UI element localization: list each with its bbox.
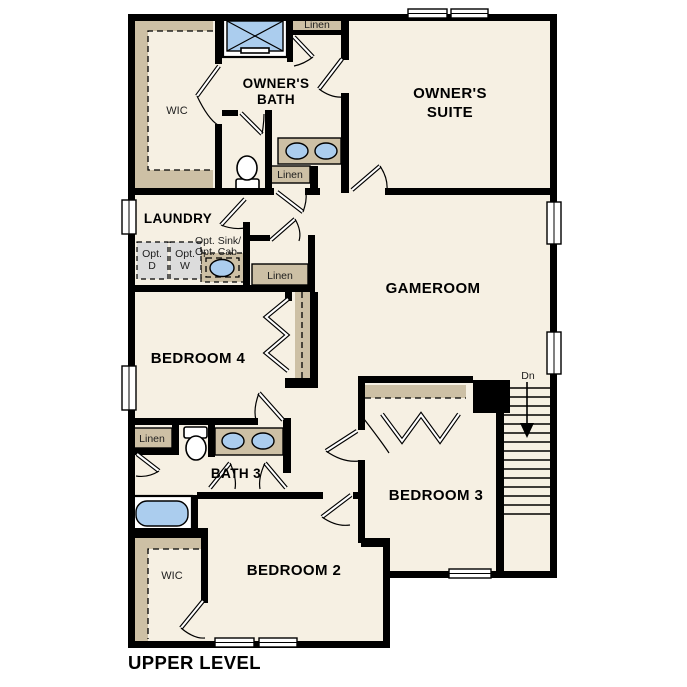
walls-part — [245, 235, 270, 241]
owners-suite-label-line1: OWNER'S — [413, 85, 487, 102]
walls-part — [358, 376, 365, 430]
walls-part — [128, 418, 258, 425]
walls-part — [128, 448, 173, 455]
walls-part — [197, 492, 323, 499]
walls-part — [285, 378, 318, 388]
owners-bath-label-line2: BATH — [257, 92, 295, 107]
owners-toilet-bowl — [237, 156, 257, 180]
walls-part — [208, 425, 215, 457]
opt-dryer-label-line2: D — [148, 260, 156, 272]
bedroom3-closet-shelf — [365, 385, 466, 398]
opt-sink-label-line2: Opt. Cab — [195, 246, 237, 258]
window-top-2 — [451, 9, 488, 18]
opt-dryer-label-line1: Opt. — [142, 248, 162, 260]
bedroom4-label: BEDROOM 4 — [151, 350, 246, 367]
window-left-laundry — [122, 200, 136, 234]
walls-part — [308, 235, 315, 292]
bath3-tub — [136, 501, 188, 526]
window-left-bedroom4 — [122, 366, 136, 410]
window-bottom-bedroom3 — [449, 569, 491, 578]
walls-part — [222, 110, 238, 116]
walls-part — [310, 292, 318, 388]
walls-part — [215, 124, 222, 195]
floor-plan-page: WIC OWNER'S BATH Linen OWNER'S SUITE Lin… — [0, 0, 687, 687]
owners-suite-label-line2: SUITE — [427, 104, 473, 121]
linen-hall-label: Linen — [267, 270, 293, 282]
bedroom2-label: BEDROOM 2 — [247, 562, 341, 579]
walls-part — [550, 14, 557, 578]
window-top-1 — [408, 9, 447, 18]
walls-part — [201, 532, 208, 603]
walls-part — [385, 188, 557, 195]
walls-part — [128, 188, 252, 195]
laundry-label: LAUNDRY — [144, 211, 212, 226]
walls-part — [361, 538, 385, 547]
walls-part — [310, 166, 318, 193]
window-right-suite — [547, 202, 561, 244]
bedroom3-label: BEDROOM 3 — [389, 487, 483, 504]
walls-part — [243, 222, 250, 292]
walls-part — [383, 538, 390, 648]
walls-part — [358, 376, 473, 383]
wic-lower-shelf-left — [135, 538, 148, 641]
bath3-sink-right — [252, 433, 274, 449]
walls-part — [238, 188, 274, 195]
linen-top-label: Linen — [304, 19, 330, 31]
owners-sink-left — [286, 143, 308, 159]
walls-part — [358, 460, 365, 543]
owners-sink-right — [315, 143, 337, 159]
window-right-gameroom — [547, 332, 561, 374]
walls-part — [496, 413, 504, 573]
bath3-toilet-bowl — [186, 436, 206, 460]
walls-part — [172, 425, 179, 455]
gameroom-label: GAMEROOM — [386, 280, 481, 297]
walls-part — [245, 285, 315, 292]
linen-bath3-label: Linen — [139, 433, 165, 445]
plan-title: UPPER LEVEL — [128, 652, 261, 673]
wic-lower-label: WIC — [161, 570, 182, 582]
wic-upper-shelf-top — [135, 21, 213, 31]
owners-bath-label-line1: OWNER'S — [243, 76, 310, 91]
walls-part — [128, 14, 135, 648]
walls-part — [341, 14, 349, 60]
walls-part — [341, 93, 349, 193]
walls-part — [215, 14, 222, 64]
wic-upper-label: WIC — [166, 105, 187, 117]
bath3-sink-left — [222, 433, 244, 449]
stairs-dn-label: Dn — [521, 370, 535, 382]
opt-laundry-sink — [210, 260, 234, 277]
walls-part — [265, 110, 272, 192]
walls-part — [283, 418, 291, 473]
opt-washer-label-line1: Opt. — [175, 248, 195, 260]
walls-part — [287, 14, 293, 62]
wic-upper-shelf-left — [135, 21, 148, 188]
bath3-label: BATH 3 — [211, 466, 261, 481]
walls-part — [128, 528, 208, 538]
window-bottom-bedroom2-2 — [259, 638, 297, 647]
opt-washer-label-line2: W — [180, 260, 190, 272]
window-bottom-bedroom2-1 — [215, 638, 254, 647]
linen-owners-bath-label: Linen — [277, 169, 303, 181]
walls-part — [128, 285, 250, 292]
shower-ledge — [241, 48, 269, 53]
upper-level-floor-plan: WIC OWNER'S BATH Linen OWNER'S SUITE Lin… — [0, 0, 687, 687]
wic-upper-shelf-bottom — [135, 170, 213, 188]
